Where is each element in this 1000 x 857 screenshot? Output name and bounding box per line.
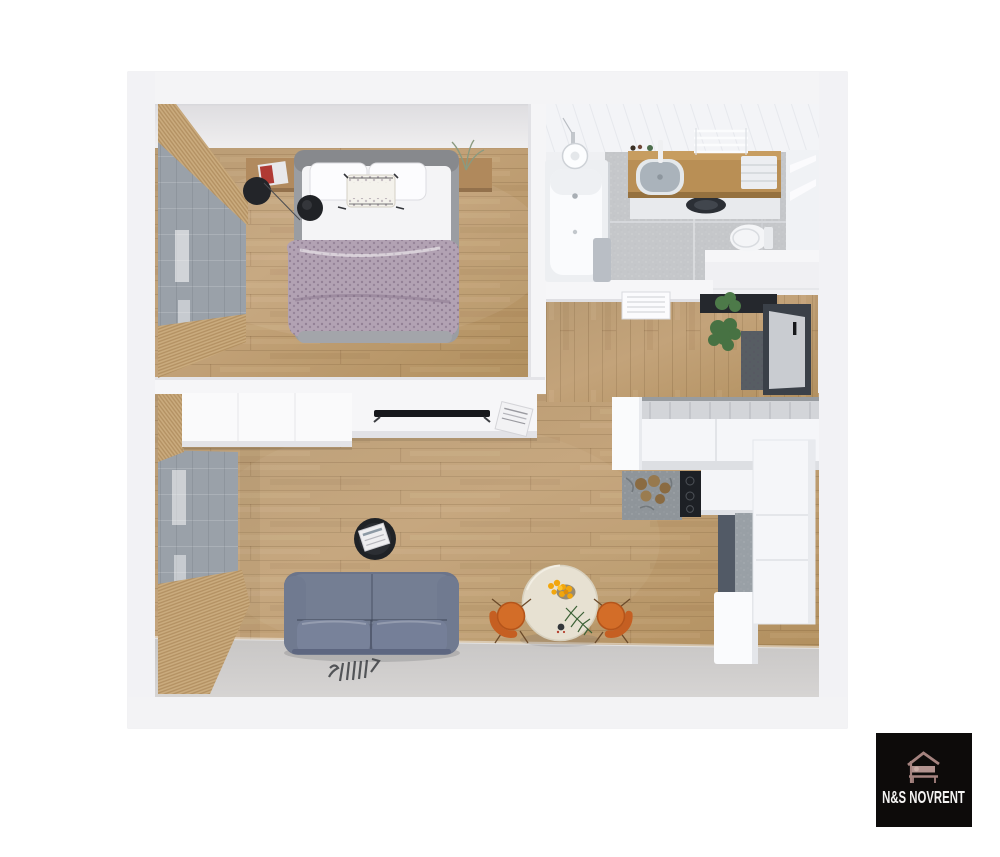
svg-text:N&S NOVRENT: N&S NOVRENT [882, 789, 965, 808]
